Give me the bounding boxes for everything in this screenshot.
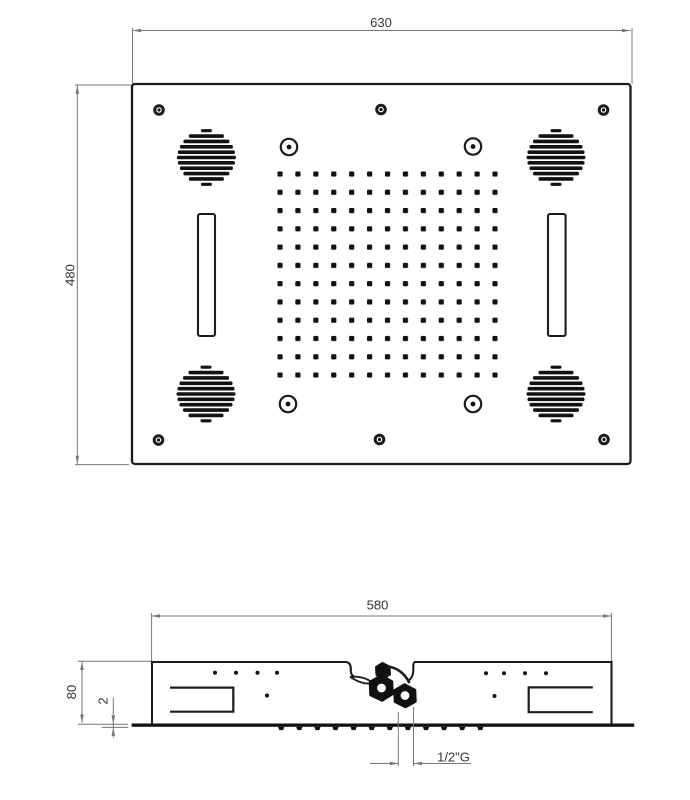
svg-text:2: 2 bbox=[96, 697, 111, 704]
svg-text:80: 80 bbox=[64, 685, 79, 699]
svg-text:630: 630 bbox=[370, 15, 392, 30]
svg-text:580: 580 bbox=[367, 598, 389, 613]
svg-text:480: 480 bbox=[63, 264, 78, 286]
svg-text:1/2"G: 1/2"G bbox=[437, 750, 470, 765]
